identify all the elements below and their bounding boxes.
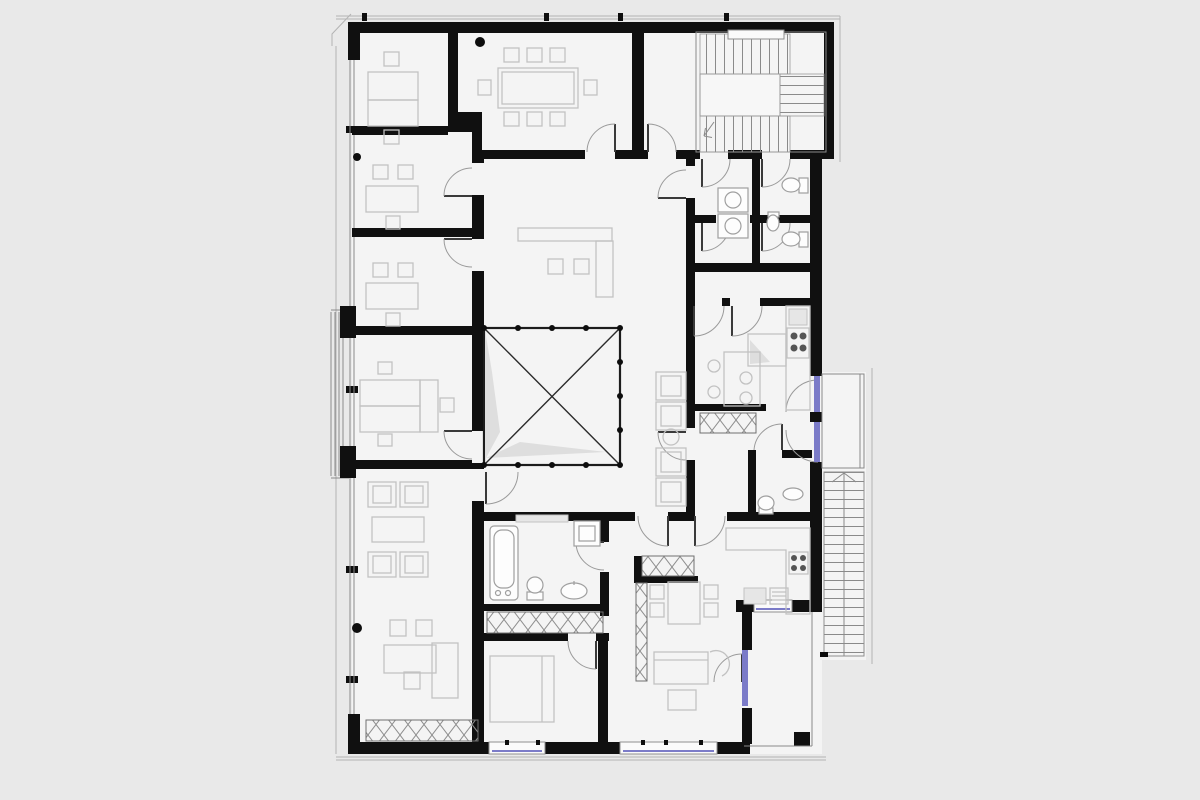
terrace-corner-post xyxy=(794,732,810,746)
sill-line-bottom xyxy=(336,757,826,760)
wall-segment xyxy=(790,150,834,159)
wardrobe-hatch xyxy=(642,556,694,576)
mullion xyxy=(810,412,822,422)
window-bottom-left xyxy=(489,740,545,754)
wall-segment xyxy=(632,26,644,152)
floor-plan-drawing xyxy=(0,0,1200,800)
wall-segment xyxy=(752,158,760,215)
column-dot xyxy=(353,153,361,161)
terrace-glass-door xyxy=(742,650,748,706)
wardrobe-hatch xyxy=(700,413,756,433)
wall-segment xyxy=(472,126,482,154)
wall-right-lower xyxy=(810,472,822,612)
wall-segment xyxy=(748,450,756,520)
wall-segment xyxy=(472,512,484,750)
wall-segment xyxy=(750,215,812,223)
wardrobe-hatch xyxy=(487,612,603,633)
wall-corner-tl xyxy=(348,32,360,60)
stair-flight-upper xyxy=(700,34,790,74)
wall-bottom xyxy=(545,742,620,754)
wall-segment xyxy=(596,633,609,641)
wall-segment xyxy=(760,298,812,306)
wall-segment xyxy=(448,26,458,118)
stair-landing xyxy=(700,74,780,116)
mullion xyxy=(810,462,822,472)
stair-flight-lower xyxy=(700,116,790,152)
balcony-glass-door xyxy=(814,422,820,462)
mullion xyxy=(810,366,822,376)
wall-segment xyxy=(676,150,688,159)
balcony-glass-door xyxy=(814,376,820,412)
wall-segment xyxy=(352,228,472,237)
wc-toilet xyxy=(782,178,808,193)
stair-end-marker xyxy=(820,652,828,657)
wall-segment xyxy=(634,556,642,576)
wall-segment xyxy=(600,512,609,542)
wall-segment xyxy=(472,195,484,239)
wall-segment xyxy=(668,512,692,521)
column-dot xyxy=(475,37,485,47)
wall-segment xyxy=(686,263,812,272)
wall-bottom xyxy=(348,742,489,754)
shaft-hatch xyxy=(636,583,647,681)
exterior-stair xyxy=(820,472,864,657)
wall-segment xyxy=(686,298,692,306)
wall-right-upper xyxy=(810,158,822,366)
wall-segment xyxy=(482,633,568,641)
wall-segment xyxy=(742,708,752,744)
wall-segment xyxy=(598,641,608,742)
wall-segment xyxy=(792,600,820,612)
wall-segment xyxy=(472,271,484,431)
wall-segment xyxy=(688,150,700,159)
wall-segment xyxy=(472,158,484,163)
wall-segment xyxy=(352,326,472,335)
wall-segment xyxy=(690,404,766,411)
wall-segment xyxy=(352,126,448,135)
wall-segment xyxy=(722,298,730,306)
wall-segment xyxy=(742,612,752,650)
wall-segment xyxy=(472,150,585,159)
wall-segment xyxy=(686,158,695,166)
floor-plan-canvas xyxy=(0,0,1200,800)
window-bottom-right xyxy=(620,740,717,754)
wall-segment xyxy=(352,460,472,469)
column-dot xyxy=(352,623,362,633)
wall-segment xyxy=(686,215,716,223)
wc-toilet xyxy=(782,232,808,247)
stair-top-door xyxy=(728,30,784,39)
sill-line-top xyxy=(336,16,840,19)
stair-flight-side xyxy=(780,74,824,116)
wall-segment xyxy=(752,223,760,263)
wall-segment xyxy=(482,604,608,611)
wardrobe-hatch xyxy=(366,720,478,741)
wall-segment xyxy=(686,460,695,512)
urinal xyxy=(767,212,779,231)
